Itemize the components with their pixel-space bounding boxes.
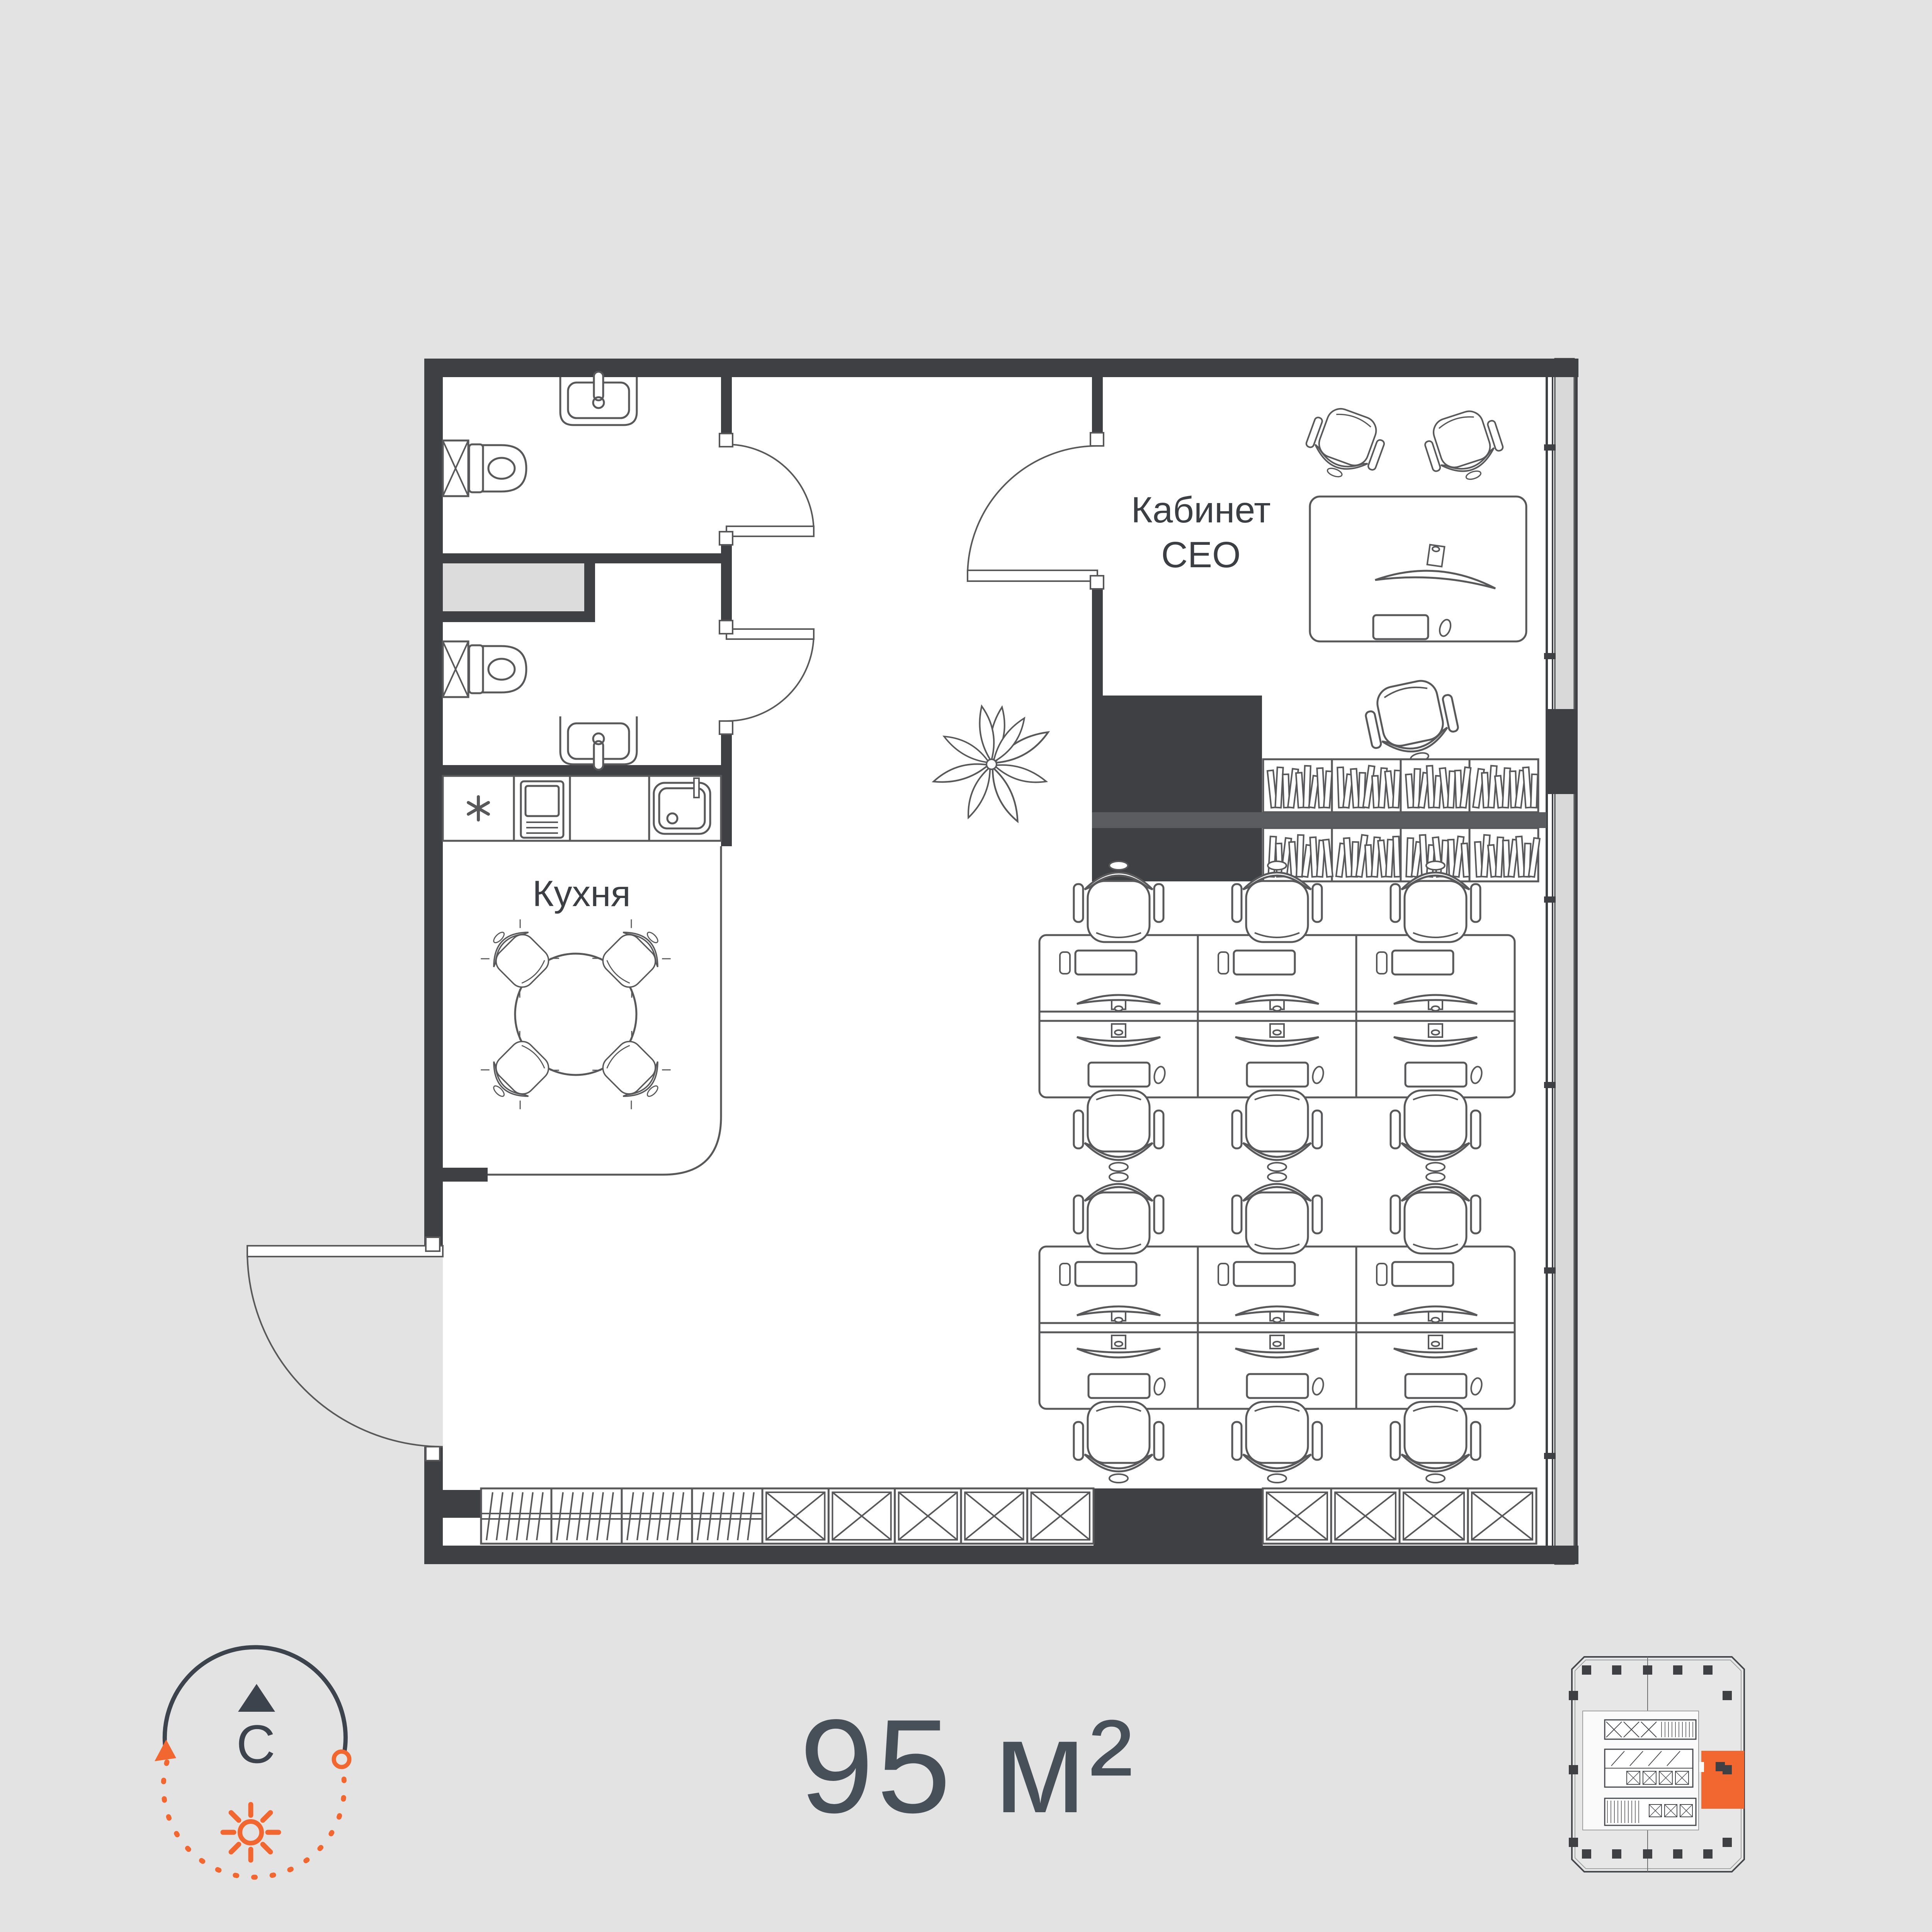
keyboard-icon	[1234, 1262, 1295, 1286]
kitchen-sink-icon	[654, 778, 710, 834]
core-block	[1092, 696, 1262, 881]
wardrobe-icon	[481, 1488, 762, 1544]
keyboard-icon	[1247, 1063, 1308, 1087]
unit-highlight	[1701, 1751, 1744, 1809]
partition-band	[1092, 812, 1546, 828]
wall-pilaster	[443, 1490, 481, 1518]
sunset-point-icon	[334, 1752, 349, 1767]
keyboard-icon	[1075, 951, 1136, 975]
desk-cluster	[1039, 861, 1515, 1171]
kitchen-label: Кухня	[532, 873, 631, 914]
ventilation-shaft-icon	[443, 641, 468, 697]
ventilation-shaft-icon	[443, 440, 468, 496]
keyboard-icon	[1234, 951, 1295, 975]
compass-north-letter: С	[236, 1714, 275, 1774]
ceo-office-label-line1: Кабинет	[1131, 490, 1270, 531]
toilet-icon	[469, 444, 526, 492]
building-core	[1605, 1720, 1696, 1825]
oven-icon	[521, 781, 563, 838]
building-keyplan	[1569, 1657, 1744, 1872]
unit-entry-notch	[1699, 1762, 1704, 1772]
toilet-icon	[469, 645, 526, 693]
keyboard-icon	[1392, 1262, 1453, 1286]
kitchen-wall-stub	[443, 1168, 488, 1182]
sun-icon	[223, 1804, 279, 1860]
desk-cluster	[1039, 1173, 1515, 1483]
ceo-office-label-line2: СЕО	[1161, 534, 1241, 575]
wall-bottom	[424, 1546, 1578, 1564]
bottom-pier	[1094, 1488, 1263, 1546]
keyboard-icon	[1392, 951, 1453, 975]
keyboard-icon	[1088, 1063, 1150, 1087]
keyboard-icon	[1405, 1063, 1466, 1087]
wall-left-upper	[424, 359, 443, 1251]
floor-plan-canvas: Кабинет СЕО Кухня С 95 м²	[0, 0, 1932, 1932]
keyboard-icon	[1373, 615, 1428, 639]
area-label: 95 м²	[799, 1692, 1136, 1841]
window-pier	[1546, 709, 1578, 794]
keyboard-icon	[1088, 1374, 1150, 1398]
keyboard-icon	[1405, 1374, 1466, 1398]
keyboard-icon	[1075, 1262, 1136, 1286]
shaft-duct	[443, 563, 584, 611]
keyboard-icon	[1247, 1374, 1308, 1398]
